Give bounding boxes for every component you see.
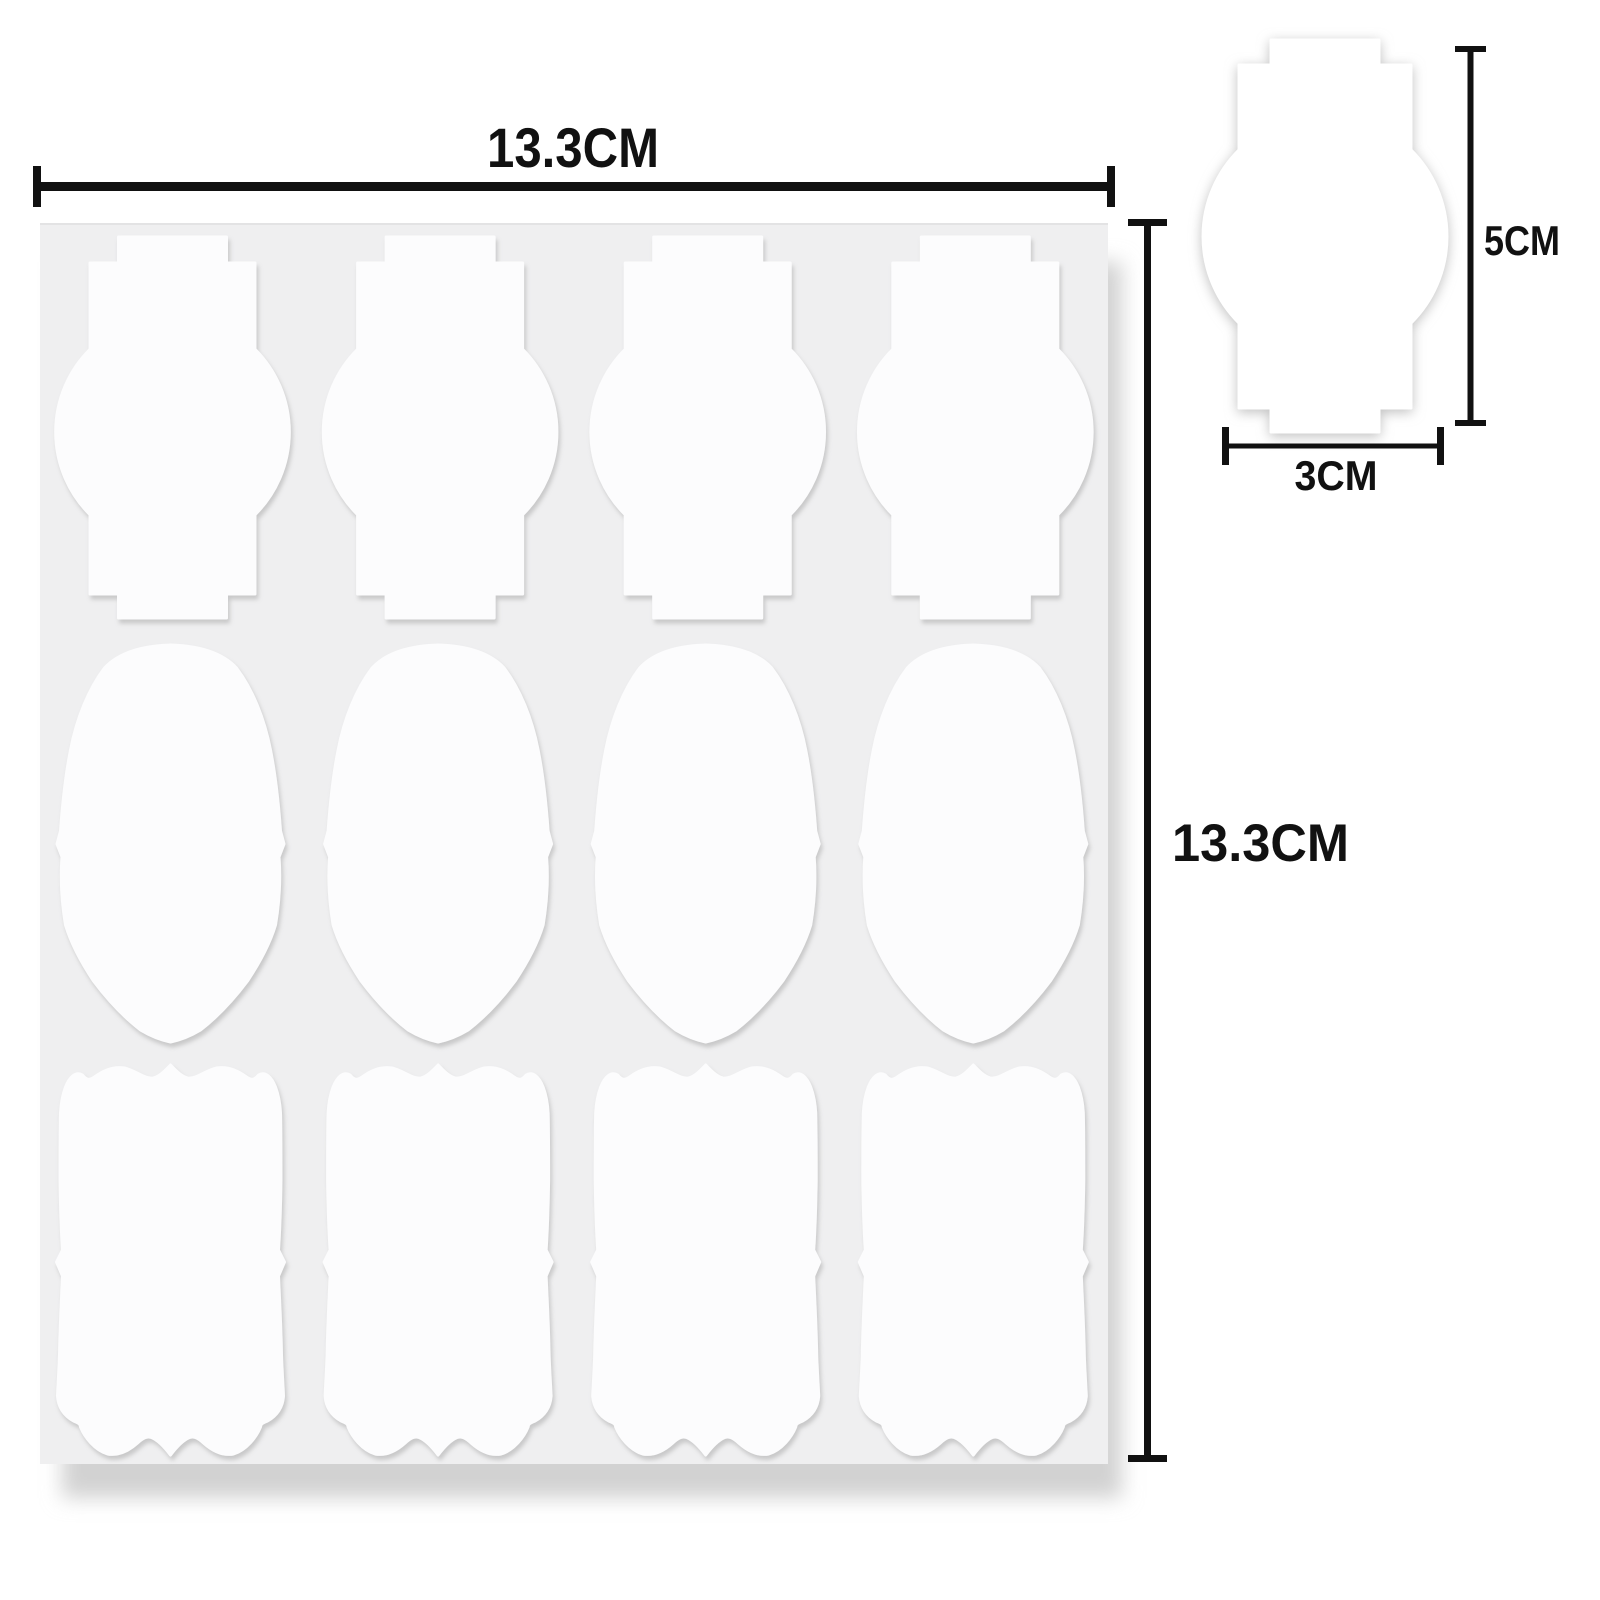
svg-text:13.3CM: 13.3CM xyxy=(487,116,659,179)
svg-text:3CM: 3CM xyxy=(1295,452,1378,499)
svg-text:13.3CM: 13.3CM xyxy=(1172,814,1349,873)
svg-text:5CM: 5CM xyxy=(1484,217,1560,264)
